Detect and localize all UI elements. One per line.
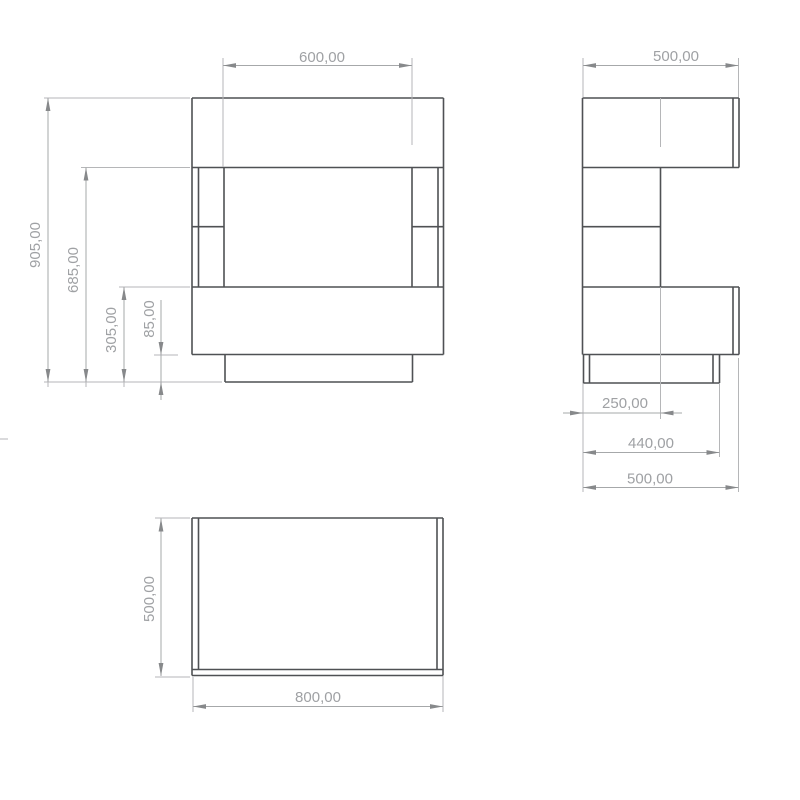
dimension-arrow [159,382,164,395]
dimension-arrow [84,168,89,181]
dimension-arrow [661,411,674,416]
side-base-depth: 440,00 [583,435,720,455]
side-depth-top: 500,00 [583,48,739,68]
front-opening-width: 600,00 [223,49,412,68]
dimension-arrow [583,63,596,68]
front-height-685: 685,00 [65,168,88,383]
top-depth: 500,00 [141,519,163,677]
dimension-label: 800,00 [295,689,341,706]
dimension-arrow [193,704,206,709]
extension-lines [0,58,739,712]
dimension-arrow [122,287,127,300]
dimension-arrow [159,519,164,532]
front-view [192,98,444,382]
dimension-arrow [707,450,720,455]
dimension-label: 250,00 [602,395,648,412]
dimension-arrow [46,369,51,382]
dimension-arrow [84,369,89,382]
dimension-arrow [223,63,236,68]
dimension-label: 85,00 [141,300,158,338]
technical-drawing-canvas: 600,00905,00685,00305,0085,00500,00250,0… [0,0,800,800]
dimension-label: 500,00 [653,48,699,65]
dimension-label: 685,00 [65,247,82,293]
top-width: 800,00 [193,689,443,709]
dimension-arrow [46,98,51,111]
dimension-arrow [430,704,443,709]
dimension-label: 905,00 [27,222,44,268]
dimension-arrow [583,485,596,490]
dimension-label: 440,00 [628,435,674,452]
dimension-label: 305,00 [103,307,120,353]
side-back-panel-depth: 250,00 [563,395,682,415]
dimension-arrow [726,485,739,490]
dimension-arrow [726,63,739,68]
top-view [192,518,443,676]
dimension-label: 500,00 [141,576,158,622]
dimension-arrow [570,411,583,416]
front-plinth-height: 85,00 [141,300,163,400]
dimension-label: 500,00 [627,470,673,487]
dimension-arrow [399,63,412,68]
dimension-arrow [159,342,164,355]
dimension-label: 600,00 [299,49,345,66]
dimension-arrow [583,450,596,455]
front-total-height: 905,00 [27,98,50,382]
front-height-305: 305,00 [103,287,126,382]
dimension-arrow [122,369,127,382]
orthographic-drawing: 600,00905,00685,00305,0085,00500,00250,0… [0,0,800,800]
side-depth-bottom: 500,00 [583,470,739,489]
dimension-arrow [159,663,164,676]
